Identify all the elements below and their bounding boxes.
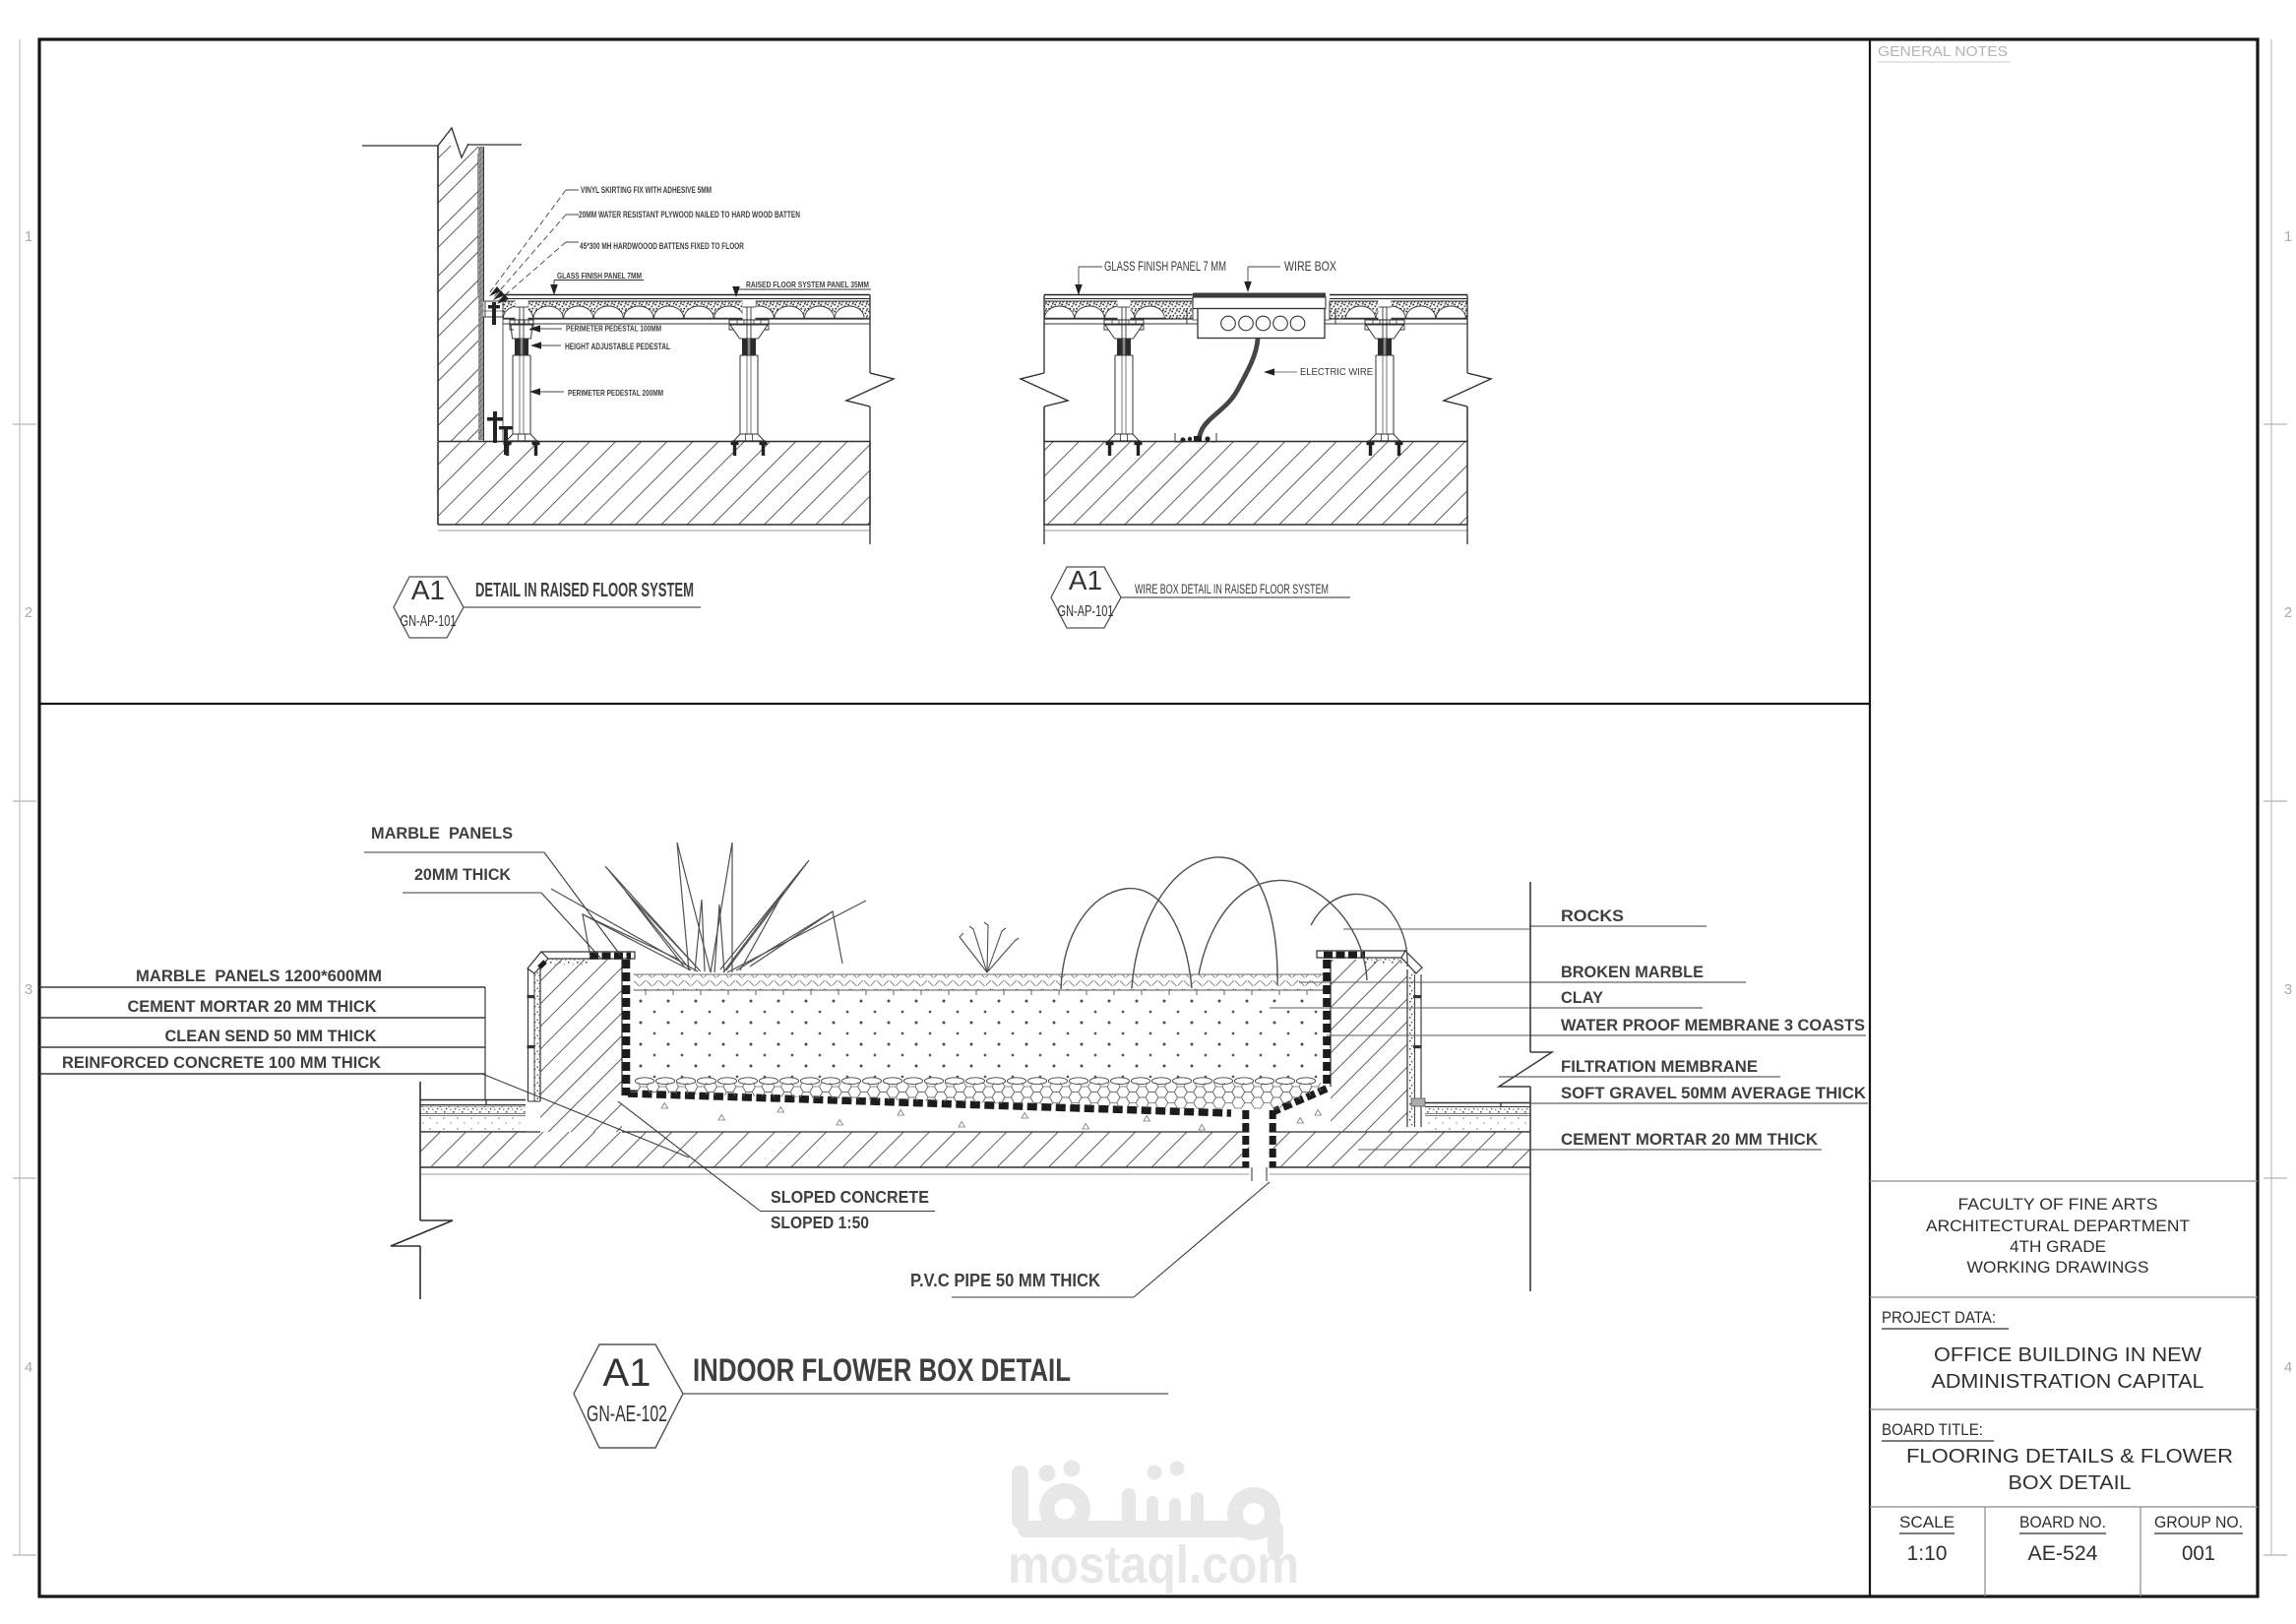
svg-text:WATER PROOF MEMBRANE 3 COASTS: WATER PROOF MEMBRANE 3 COASTS: [1561, 1016, 1865, 1034]
svg-text:P.V.C PIPE 50 MM THICK: P.V.C PIPE 50 MM THICK: [910, 1271, 1100, 1290]
svg-text:1: 1: [25, 228, 32, 245]
svg-text:SLOPED 1:50: SLOPED 1:50: [771, 1213, 869, 1232]
svg-text:2: 2: [25, 604, 32, 621]
svg-text:PERIMETER PEDESTAL 200MM: PERIMETER PEDESTAL 200MM: [568, 388, 663, 398]
svg-text:2: 2: [2284, 604, 2292, 621]
svg-text:DETAIL IN RAISED FLOOR SYSTEM: DETAIL IN RAISED FLOOR SYSTEM: [475, 579, 694, 601]
svg-text:45*300 MH HARDWOOOD BATTENS FI: 45*300 MH HARDWOOOD BATTENS FIXED TO FLO…: [580, 241, 744, 251]
svg-text:CEMENT MORTAR 20 MM THICK: CEMENT MORTAR 20 MM THICK: [1561, 1130, 1819, 1149]
svg-text:ELECTRIC WIRE: ELECTRIC WIRE: [1300, 367, 1373, 378]
svg-text:BOX DETAIL: BOX DETAIL: [2009, 1471, 2132, 1494]
svg-text:VINYL SKIRTING FIX WITH ADHESI: VINYL SKIRTING FIX WITH ADHESIVE 5MM: [581, 185, 712, 195]
svg-text:ARCHITECTURAL DEPARTMENT: ARCHITECTURAL DEPARTMENT: [1926, 1217, 2190, 1235]
svg-text:MARBLE PANELS 1200*600MM: MARBLE PANELS 1200*600MM: [136, 967, 382, 985]
svg-text:GN-AE-102: GN-AE-102: [587, 1401, 667, 1426]
svg-text:AE-524: AE-524: [2028, 1542, 2098, 1565]
svg-text:FACULTY OF FINE ARTS: FACULTY OF FINE ARTS: [1958, 1195, 2158, 1214]
svg-text:WIRE BOX: WIRE BOX: [1284, 259, 1336, 274]
svg-text:BOARD NO.: BOARD NO.: [2019, 1514, 2106, 1531]
svg-text:001: 001: [2182, 1542, 2215, 1565]
svg-text:SOFT GRAVEL 50MM AVERAGE THICK: SOFT GRAVEL 50MM AVERAGE THICK: [1561, 1084, 1867, 1102]
svg-text:MARBLE PANELS: MARBLE PANELS: [371, 824, 513, 843]
svg-text:3: 3: [25, 981, 32, 998]
svg-text:1: 1: [2284, 228, 2292, 245]
svg-text:GN-AP-101: GN-AP-101: [401, 613, 457, 630]
svg-text:GN-AP-101: GN-AP-101: [1058, 603, 1114, 620]
svg-text:BROKEN MARBLE: BROKEN MARBLE: [1561, 963, 1704, 981]
svg-text:20MM WATER RESISTANT PLYWOOD N: 20MM WATER RESISTANT PLYWOOD NAILED TO H…: [579, 210, 800, 219]
svg-text:ROCKS: ROCKS: [1561, 906, 1624, 925]
svg-text:FLOORING DETAILS & FLOWER: FLOORING DETAILS & FLOWER: [1906, 1445, 2233, 1468]
svg-text:mostaql.com: mostaql.com: [1008, 1535, 1299, 1594]
svg-text:RAISED FLOOR SYSTEM PANEL 35MM: RAISED FLOOR SYSTEM PANEL 35MM: [746, 280, 869, 289]
svg-text:FILTRATION MEMBRANE: FILTRATION MEMBRANE: [1561, 1057, 1758, 1076]
svg-text:SLOPED CONCRETE: SLOPED CONCRETE: [771, 1187, 929, 1207]
svg-text:ADMINISTRATION CAPITAL: ADMINISTRATION CAPITAL: [1932, 1370, 2204, 1393]
svg-text:1:10: 1:10: [1907, 1542, 1948, 1565]
svg-text:A1: A1: [1069, 565, 1102, 595]
svg-text:WORKING DRAWINGS: WORKING DRAWINGS: [1967, 1258, 2149, 1277]
svg-text:GENERAL NOTES: GENERAL NOTES: [1878, 43, 2008, 60]
svg-text:CLAY: CLAY: [1561, 988, 1604, 1007]
svg-text:GLASS FINISH PANEL 7 MM: GLASS FINISH PANEL 7 MM: [1104, 259, 1226, 274]
svg-text:BOARD TITLE:: BOARD TITLE:: [1882, 1420, 1983, 1439]
svg-text:A1: A1: [603, 1351, 652, 1395]
svg-text:4TH GRADE: 4TH GRADE: [2010, 1237, 2106, 1256]
svg-text:CLEAN SEND 50 MM THICK: CLEAN SEND 50 MM THICK: [165, 1027, 378, 1045]
svg-text:SCALE: SCALE: [1899, 1514, 1955, 1531]
svg-text:CEMENT MORTAR 20 MM THICK: CEMENT MORTAR 20 MM THICK: [128, 997, 378, 1016]
svg-text:GROUP NO.: GROUP NO.: [2154, 1514, 2243, 1531]
svg-text:REINFORCED CONCRETE 100 MM THI: REINFORCED CONCRETE 100 MM THICK: [62, 1053, 382, 1072]
svg-text:4: 4: [25, 1359, 32, 1376]
svg-text:4: 4: [2284, 1359, 2292, 1376]
svg-text:HEIGHT ADJUSTABLE PEDESTAL: HEIGHT ADJUSTABLE PEDESTAL: [565, 342, 670, 351]
svg-text:3: 3: [2284, 981, 2292, 998]
svg-text:20MM THICK: 20MM THICK: [414, 865, 512, 884]
svg-text:GLASS FINISH PANEL 7MM: GLASS FINISH PANEL 7MM: [557, 271, 642, 281]
svg-text:OFFICE BUILDING IN NEW: OFFICE BUILDING IN NEW: [1934, 1343, 2203, 1366]
svg-text:PERIMETER PEDESTAL 100MM: PERIMETER PEDESTAL 100MM: [566, 324, 661, 334]
svg-text:A1: A1: [411, 575, 445, 605]
svg-text:INDOOR FLOWER BOX DETAIL: INDOOR FLOWER BOX DETAIL: [693, 1352, 1071, 1388]
svg-text:PROJECT DATA:: PROJECT DATA:: [1882, 1308, 1996, 1327]
svg-text:WIRE BOX DETAIL IN RAISED FLOO: WIRE BOX DETAIL IN RAISED FLOOR SYSTEM: [1135, 582, 1329, 596]
